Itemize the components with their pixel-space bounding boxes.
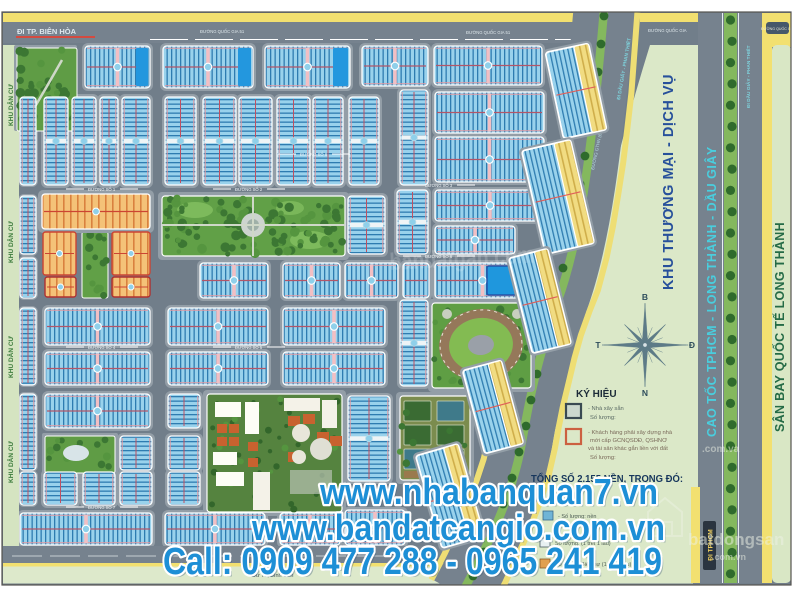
svg-text:N: N: [642, 388, 648, 398]
svg-text:B: B: [642, 292, 648, 302]
svg-text:ĐI DẦU GIÂY - PHAN THIẾT: ĐI DẦU GIÂY - PHAN THIẾT: [745, 45, 752, 108]
svg-text:KÝ HIỆU: KÝ HIỆU: [576, 387, 617, 400]
svg-text:và tài sản khác gắn liền với đ: và tài sản khác gắn liền với đất: [588, 445, 668, 452]
svg-text:ĐƯỜNG QUỐC GIA: ĐƯỜNG QUỐC GIA: [648, 28, 687, 33]
svg-text:ĐƯỜNG SỐ 4: ĐƯỜNG SỐ 4: [88, 345, 116, 350]
svg-text:mới cấp GCNQSDĐ, QSHNƠ: mới cấp GCNQSDĐ, QSHNƠ: [590, 438, 667, 444]
svg-text:.com.va: .com.va: [702, 444, 740, 455]
svg-text:KHU DÂN CƯ: KHU DÂN CƯ: [6, 220, 15, 262]
svg-text:ĐƯỜNG SỐ 1: ĐƯỜNG SỐ 1: [88, 187, 116, 192]
svg-text:ĐI TP. BIÊN HÒA: ĐI TP. BIÊN HÒA: [17, 27, 77, 36]
svg-text:KHU DÂN CƯ: KHU DÂN CƯ: [6, 335, 15, 377]
svg-text:CAO TỐC TPHCM - LONG THÀNH - D: CAO TỐC TPHCM - LONG THÀNH - DẦU GIÂY: [704, 146, 719, 437]
svg-text:ĐƯỜNG QUỐC GIA 51: ĐƯỜNG QUỐC GIA 51: [200, 29, 245, 34]
svg-text:Số lượng:: Số lượng:: [590, 415, 616, 421]
svg-text:KHU THƯƠNG MẠI - DỊCH VỤ: KHU THƯƠNG MẠI - DỊCH VỤ: [661, 74, 677, 290]
svg-text:ĐƯỜNG SỐ 5: ĐƯỜNG SỐ 5: [235, 345, 263, 350]
svg-text:Đ: Đ: [689, 340, 695, 350]
svg-text:Số lượng:: Số lượng:: [590, 455, 616, 461]
svg-text:T: T: [595, 340, 601, 350]
svg-text:ĐƯỜNG SỐ 3: ĐƯỜNG SỐ 3: [425, 183, 453, 188]
svg-text:batdongsan: batdongsan: [688, 530, 784, 549]
svg-text:ĐƯỜNG SỐ 2: ĐƯỜNG SỐ 2: [235, 187, 263, 192]
svg-text:ĐƯỜNG SỐ 8: ĐƯỜNG SỐ 8: [300, 152, 328, 157]
svg-text:www.nhabanquan7.vn: www.nhabanquan7.vn: [319, 471, 658, 512]
svg-text:ĐƯỜNG QUỐC GIA: ĐƯỜNG QUỐC GIA: [761, 26, 795, 31]
svg-text:ĐƯỜNG QUỐC GIA 51: ĐƯỜNG QUỐC GIA 51: [466, 30, 511, 35]
svg-text:SÂN BAY QUỐC TẾ LONG THÀNH: SÂN BAY QUỐC TẾ LONG THÀNH: [772, 222, 787, 432]
svg-text:- Nhà xây sẵn: - Nhà xây sẵn: [588, 405, 624, 412]
svg-text:ĐƯỜNG SỐ 7: ĐƯỜNG SỐ 7: [88, 505, 116, 510]
svg-text:- Khách hàng phải xây dựng nhà: - Khách hàng phải xây dựng nhà: [588, 430, 673, 436]
svg-text:Call: 0909 477 288 - 0965 241: Call: 0909 477 288 - 0965 241 419: [163, 541, 662, 583]
svg-text:KHU DÂN CƯ: KHU DÂN CƯ: [6, 440, 15, 482]
svg-text:KHU DÂN CƯ: KHU DÂN CƯ: [6, 83, 15, 125]
svg-text:.com.vn: .com.vn: [712, 552, 746, 562]
